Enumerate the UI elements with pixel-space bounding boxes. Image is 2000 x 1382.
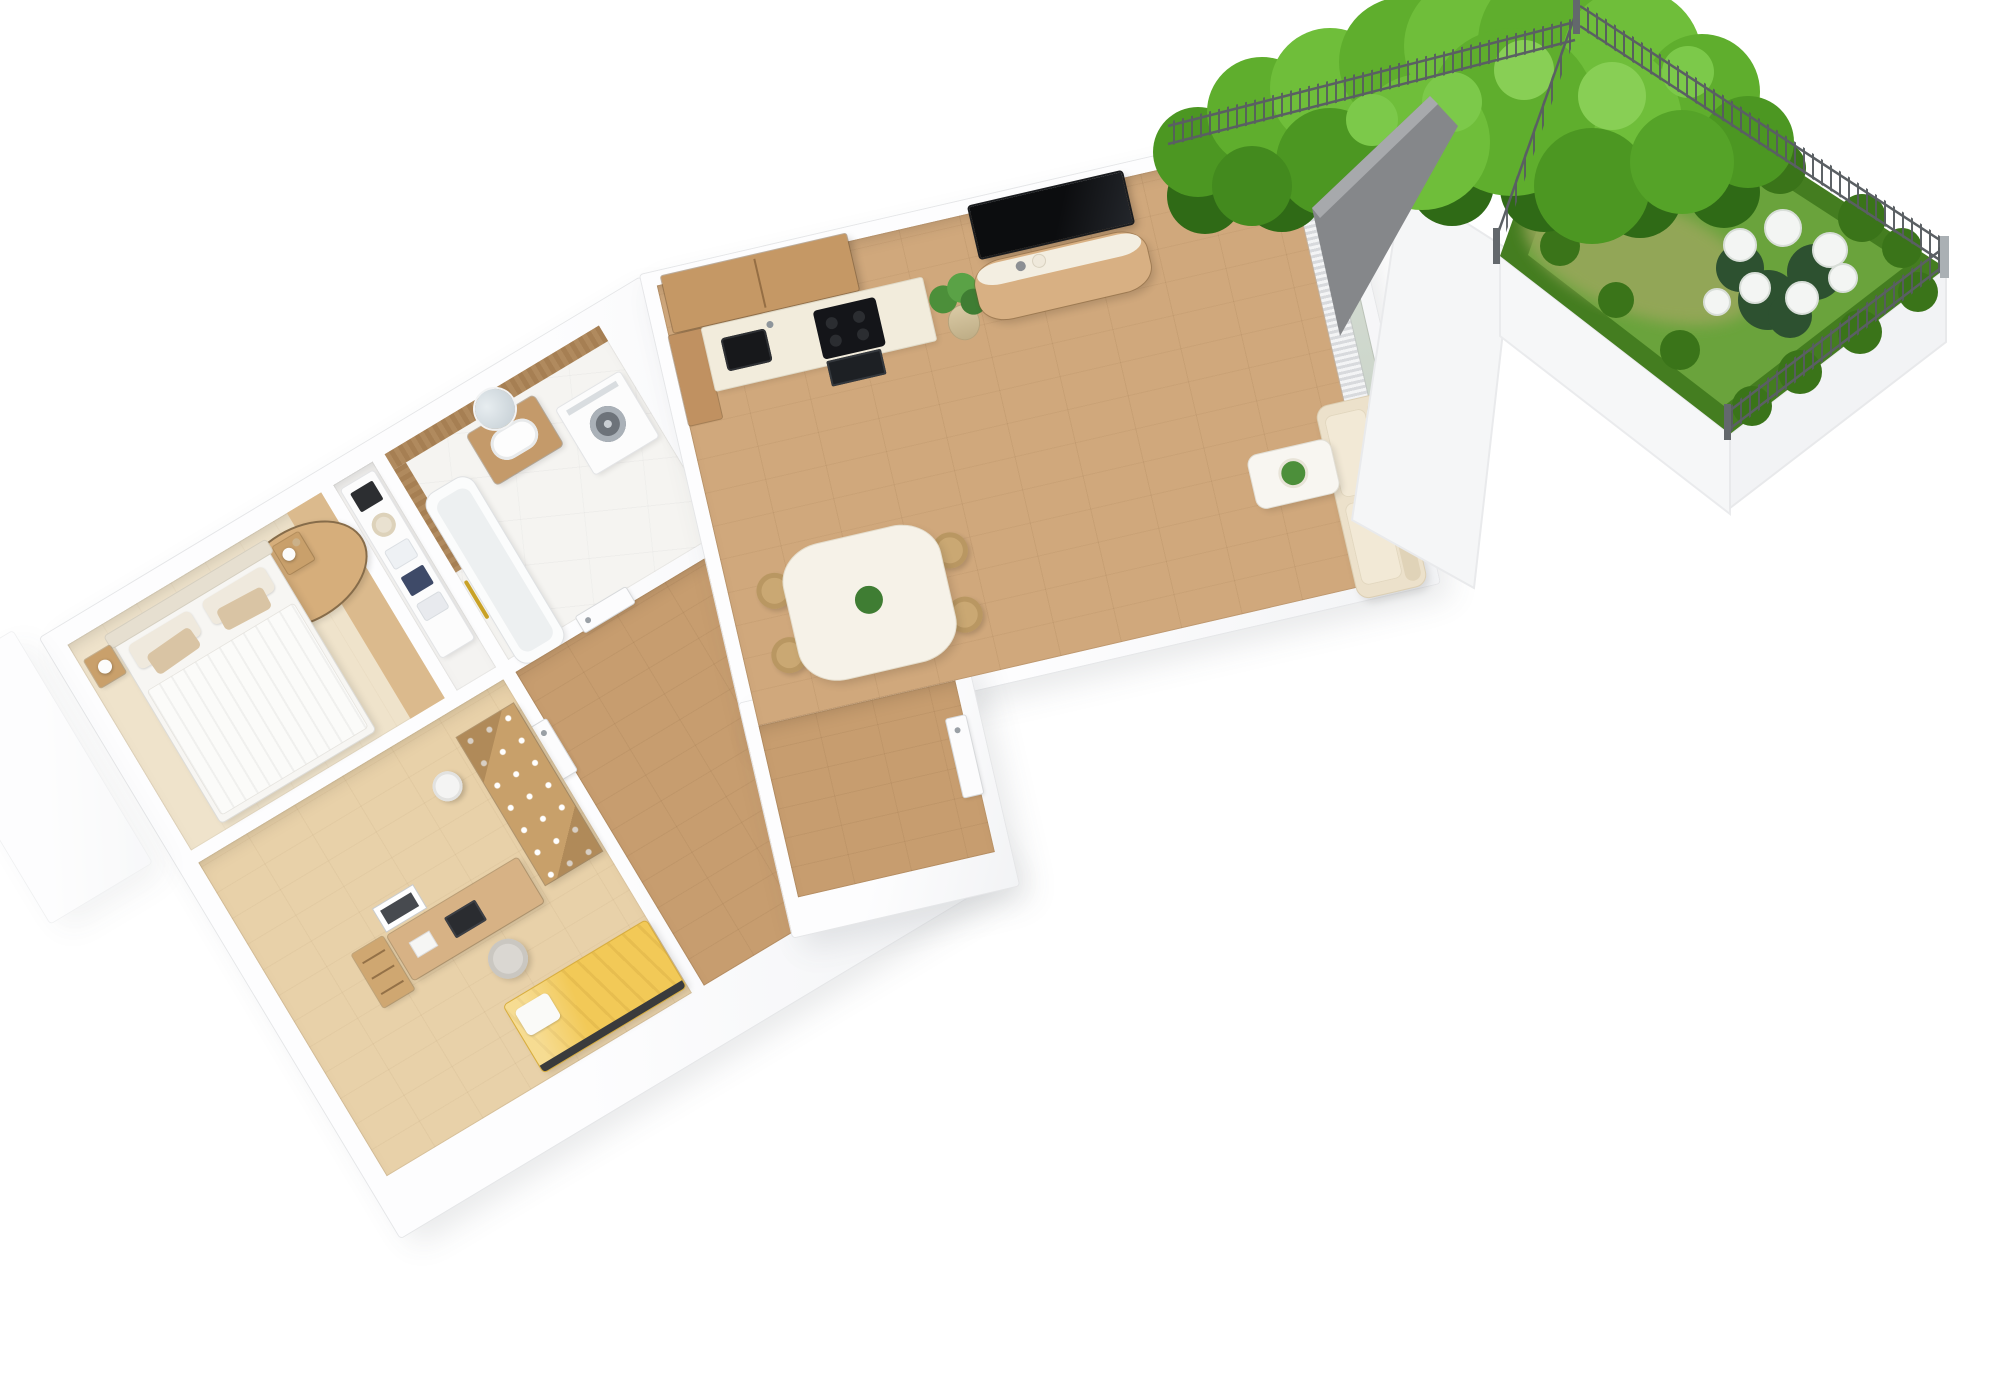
fence-post — [1940, 236, 1949, 278]
fence-post — [1724, 404, 1731, 440]
garden-overlay — [0, 0, 2000, 1382]
floor-plan-scene — [0, 0, 2000, 1382]
fence-post — [1493, 228, 1500, 264]
fence-post — [1573, 0, 1580, 34]
